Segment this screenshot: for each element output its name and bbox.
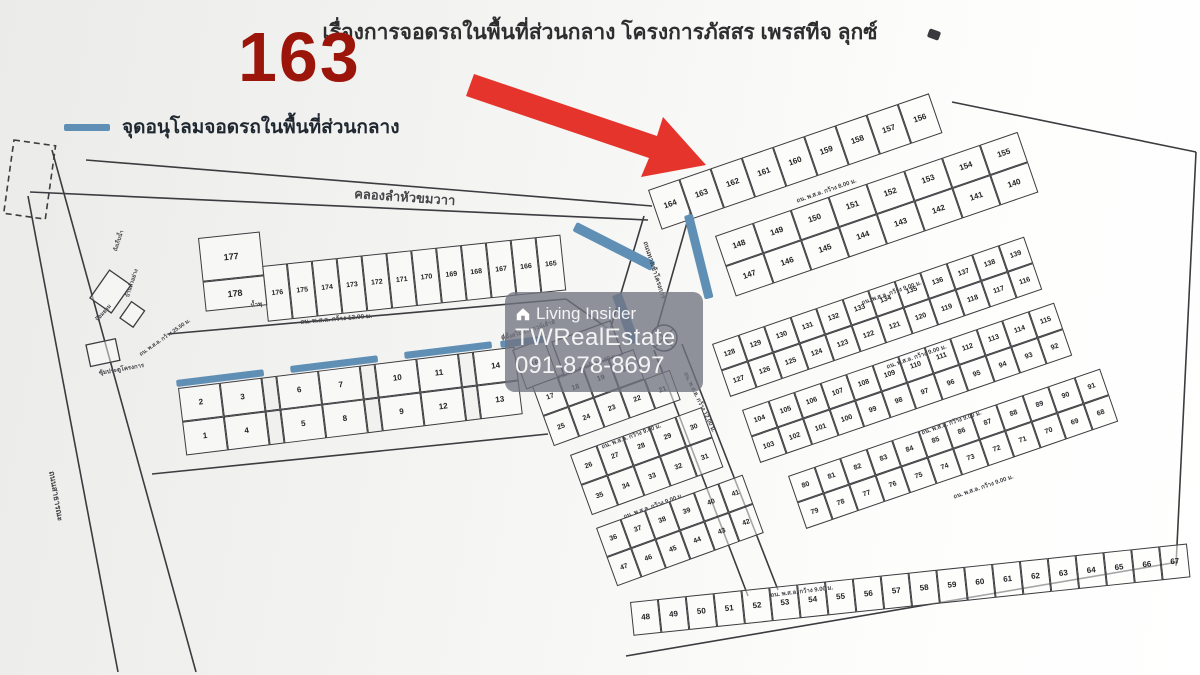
map-label: คลองลำหัวขมวาา <box>354 183 457 211</box>
watermark-agency: TWRealEstate <box>515 324 693 352</box>
parking-line-swatch <box>64 124 110 131</box>
map-label: ถน. พ.ส.ล. กว้าง 9.00 ม. <box>885 341 948 371</box>
watermark: Living Insider TWRealEstate 091-878-8697 <box>505 292 703 392</box>
map-label: ถน. พ.ส.ล. กว้าง 9.00 ม. <box>860 277 923 307</box>
map-label: ถน. พ.ส.ล. กว้าง 9.00 ม. <box>952 471 1015 501</box>
map-label: น้ำพุ <box>250 299 263 310</box>
map-label: ถน. พ.ส.ล. กว้าง 9.00 ม. <box>920 407 983 437</box>
map-label: ถน. พ.ส.ล. กว้าง 9.00 ม. <box>770 582 834 600</box>
map-label: บ้านตัวอย่าง <box>124 268 141 298</box>
highlight-plot-number: 163 <box>238 22 361 92</box>
map-label: ถนนทางเข้าโครงการ <box>640 240 668 300</box>
map-label: ถนนสาธารณะ <box>45 470 67 522</box>
map-label: ถน. พ.ส.ล. กว้าง 13.00 ม. <box>300 311 372 327</box>
parking-legend-label: จุดอนุโลมจอดรถในพื้นที่ส่วนกลาง <box>122 112 400 142</box>
parking-legend: จุดอนุโลมจอดรถในพื้นที่ส่วนกลาง <box>64 112 400 142</box>
house-logo-icon <box>515 306 531 322</box>
map-label: ถน. พ.ส.ล. กว้าง 8.00 ม. <box>795 175 858 205</box>
map-label: ถน. พ.ส.ล. กว้าง 9.00 ม. <box>600 420 663 451</box>
page-title: เรื่องการจอดรถในพื้นที่ส่วนกลาง โครงการภ… <box>70 16 1130 49</box>
watermark-brand: Living Insider <box>536 304 636 324</box>
scanned-site-plan: เรื่องการจอดรถในพื้นที่ส่วนกลาง โครงการภ… <box>0 0 1200 675</box>
map-label: ซุ้มประตูโครงการ <box>98 360 145 378</box>
watermark-phone: 091-878-8697 <box>515 352 693 380</box>
map-label: ถน. พ.ส.ล. กว้าง 9.00 ม. <box>622 490 685 521</box>
map-label: ป้อมยาม <box>94 303 114 323</box>
map-label: ถน. พ.ส.ล. กว้าง 25.50 ม. <box>138 317 192 358</box>
map-label: ถังเก็บน้ำ <box>112 229 126 252</box>
